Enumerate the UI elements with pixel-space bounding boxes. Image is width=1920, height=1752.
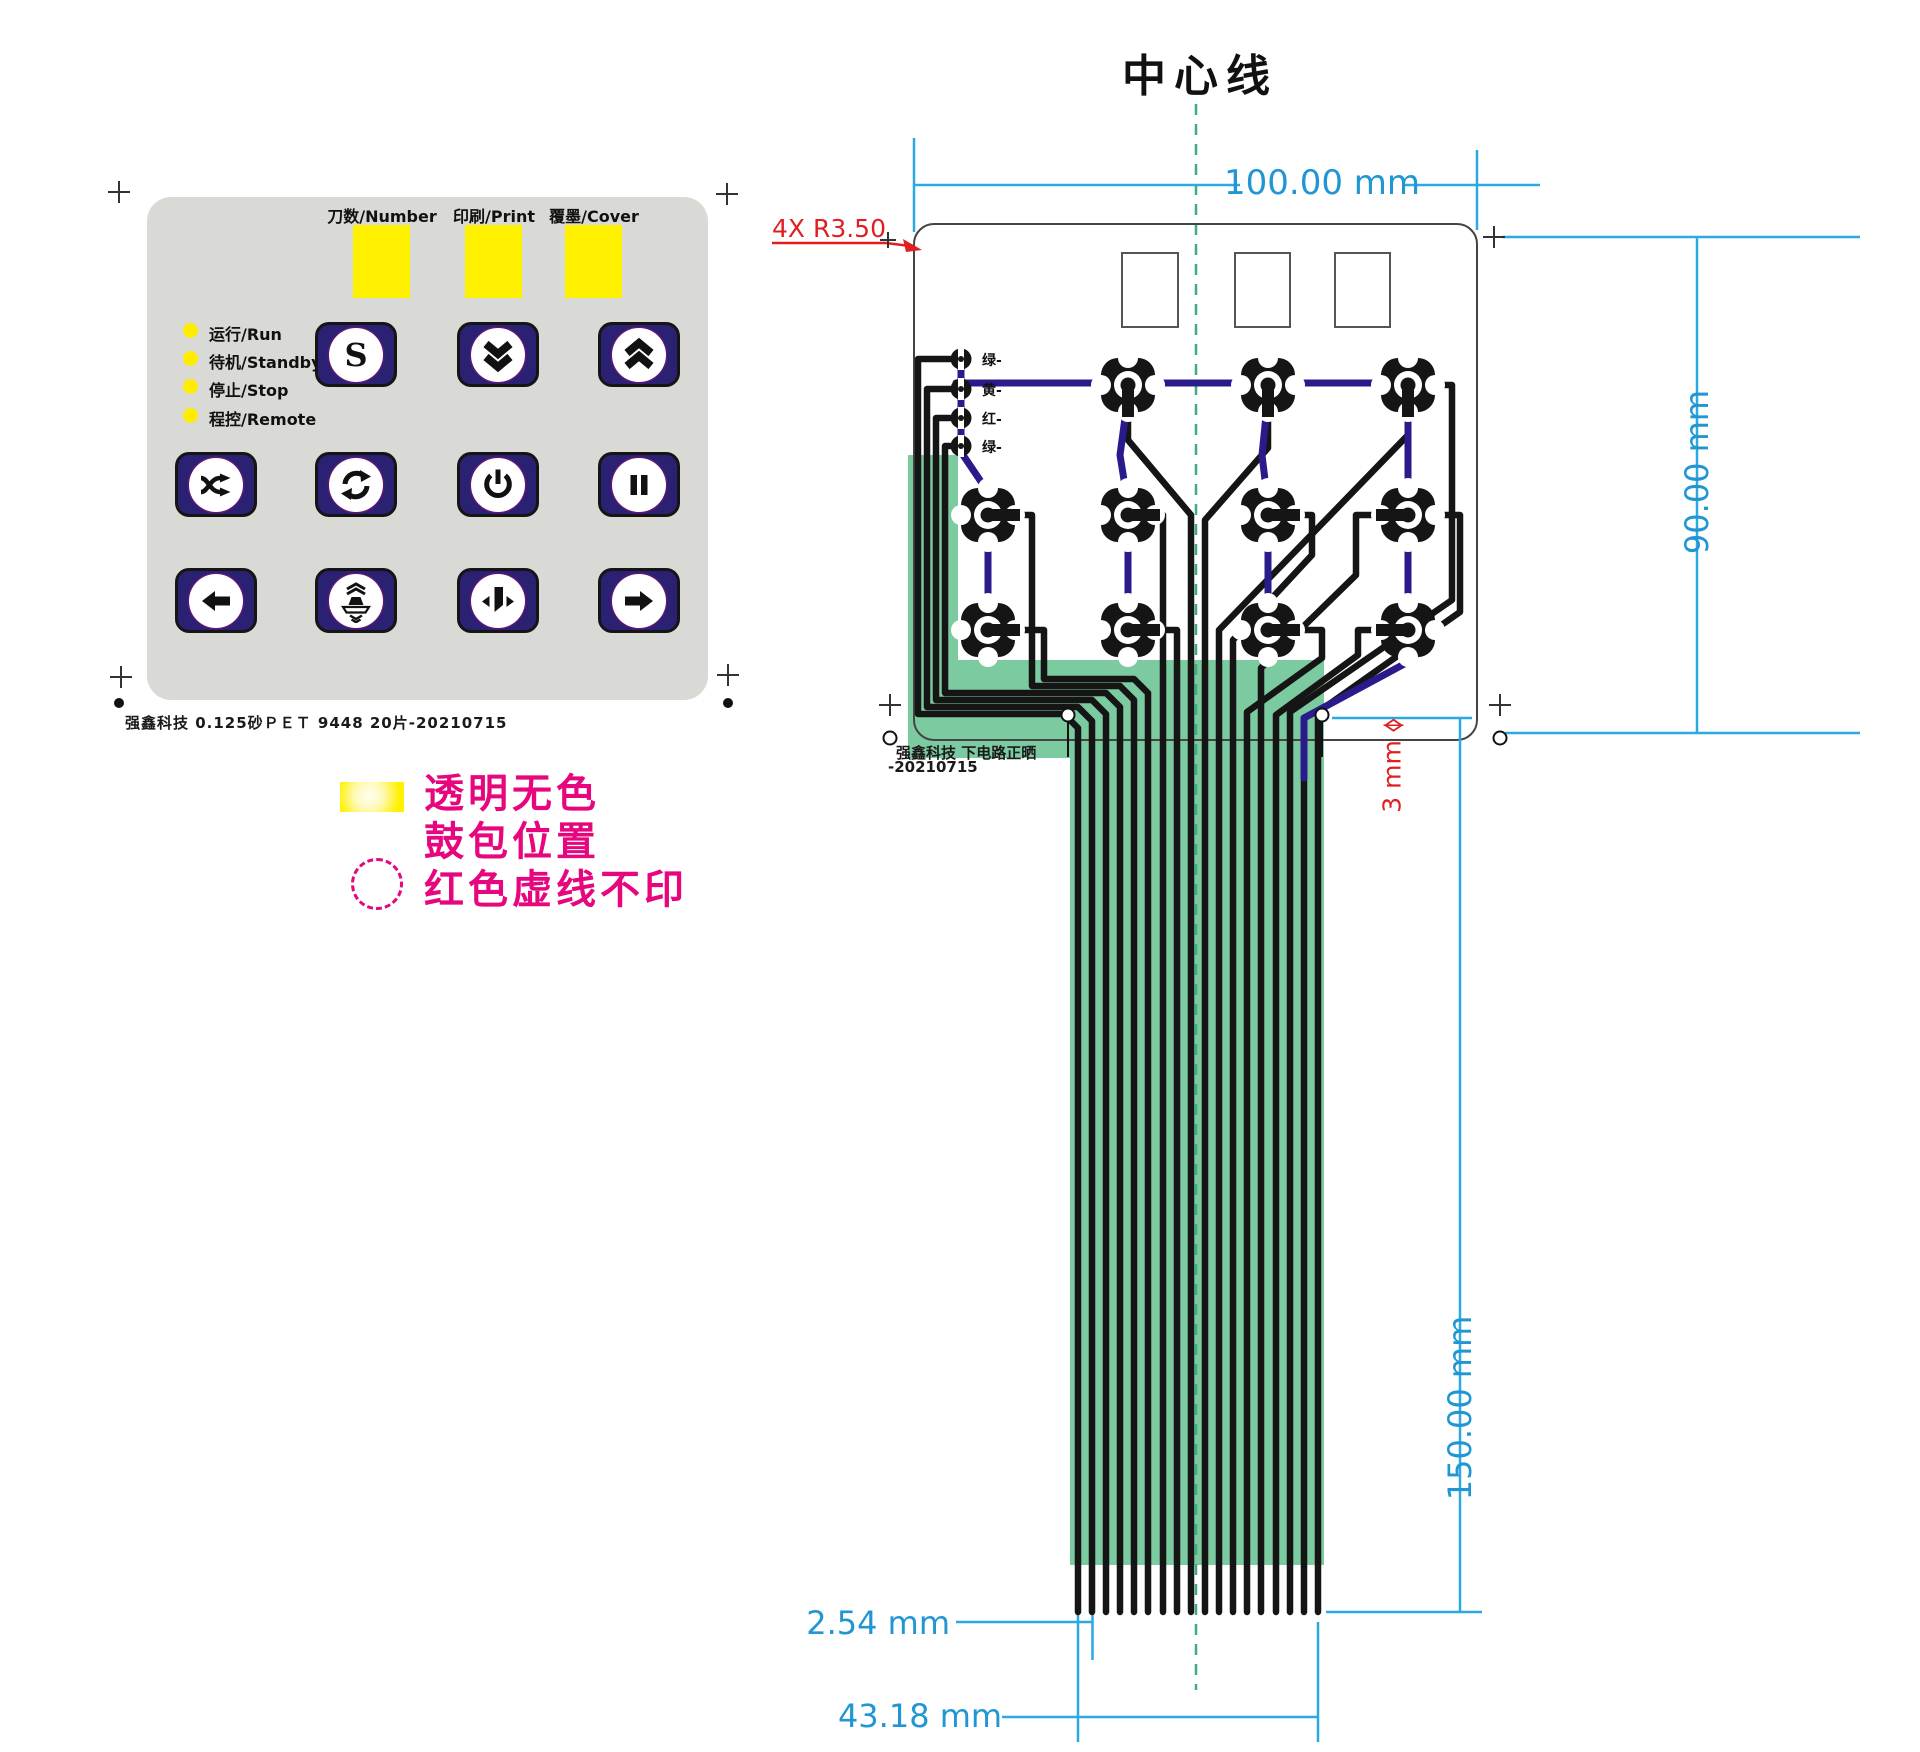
window-label: 覆墨/Cover bbox=[524, 203, 664, 227]
power-button[interactable] bbox=[457, 452, 539, 517]
black-traces bbox=[918, 359, 1460, 1612]
blade-button[interactable] bbox=[457, 568, 539, 633]
arrow-right-icon bbox=[617, 579, 661, 623]
dim-tail-width-label: 43.18 mm bbox=[838, 1697, 1002, 1735]
led-indicator bbox=[183, 323, 198, 338]
dim-tail-length-label: 150.00 mm bbox=[1441, 1316, 1479, 1500]
shuffle-icon bbox=[194, 463, 238, 507]
shuffle-button[interactable] bbox=[175, 452, 257, 517]
dim-width-label: 100.00 mm bbox=[1224, 163, 1420, 203]
circuit-panel-outline bbox=[914, 224, 1477, 740]
button-face bbox=[612, 458, 666, 512]
cycle-icon bbox=[334, 463, 378, 507]
led-label: 程控/Remote bbox=[209, 406, 316, 430]
wire-color-label: 黄- bbox=[982, 380, 1002, 400]
wire-color-label: 绿- bbox=[982, 437, 1002, 457]
legend-line: 鼓包位置 bbox=[424, 820, 600, 864]
chevrons-down-icon bbox=[476, 333, 520, 377]
s-button[interactable]: S bbox=[315, 322, 397, 387]
blue-traces bbox=[956, 368, 1408, 778]
key-contact-pads bbox=[951, 348, 1445, 667]
button-face bbox=[189, 458, 243, 512]
button-face bbox=[471, 574, 525, 628]
diameter-icon bbox=[1384, 719, 1404, 732]
double-up-button[interactable] bbox=[598, 322, 680, 387]
circuit-window-cutouts bbox=[1122, 253, 1390, 327]
hole-dim-label: 3 mm bbox=[1378, 719, 1407, 813]
tail-green-region bbox=[908, 455, 1324, 1565]
led-pads bbox=[951, 348, 972, 457]
corner-radius-label: 4X R3.50 bbox=[760, 214, 886, 243]
wire-color-label: 绿- bbox=[982, 350, 1002, 370]
press-button[interactable] bbox=[315, 568, 397, 633]
led-indicator bbox=[183, 408, 198, 423]
button-face bbox=[329, 458, 383, 512]
led-indicator bbox=[183, 379, 198, 394]
chevrons-up-icon bbox=[617, 333, 661, 377]
dim-pitch-label: 2.54 mm bbox=[770, 1604, 950, 1642]
s-icon: S bbox=[334, 333, 378, 377]
double-down-button[interactable] bbox=[457, 322, 539, 387]
legend-line: 透明无色 bbox=[424, 772, 600, 816]
center-line-title: 中心线 bbox=[1122, 40, 1278, 104]
svg-text:S: S bbox=[344, 336, 367, 374]
arrow-left-button[interactable] bbox=[175, 568, 257, 633]
button-face bbox=[471, 328, 525, 382]
button-face bbox=[471, 458, 525, 512]
dimension-lines bbox=[914, 138, 1860, 1742]
button-face: S bbox=[329, 328, 383, 382]
window-cutout bbox=[565, 225, 622, 298]
pause-icon bbox=[617, 463, 661, 507]
led-label: 待机/Standby bbox=[209, 349, 322, 373]
dim-height-label: 90.00 mm bbox=[1678, 390, 1716, 554]
arrow-right-button[interactable] bbox=[598, 568, 680, 633]
led-label: 停止/Stop bbox=[209, 377, 288, 401]
pause-button[interactable] bbox=[598, 452, 680, 517]
button-face bbox=[612, 574, 666, 628]
red-dashed-circle bbox=[351, 858, 403, 910]
led-label: 运行/Run bbox=[209, 321, 282, 345]
circuit-footer-line2: -20210715 bbox=[888, 758, 978, 776]
wire-color-label: 红- bbox=[982, 409, 1002, 429]
window-cutout bbox=[353, 225, 410, 298]
button-face bbox=[329, 574, 383, 628]
yellow-window-swatch bbox=[340, 782, 404, 812]
window-cutout bbox=[465, 225, 522, 298]
membrane-keypad-drawing: 刀数/Number印刷/Print覆墨/Cover运行/Run待机/Standb… bbox=[0, 0, 1920, 1752]
pilot-holes bbox=[1062, 709, 1329, 758]
power-icon bbox=[476, 463, 520, 507]
press-icon bbox=[334, 579, 378, 623]
legend-line: 红色虚线不印 bbox=[424, 868, 688, 912]
cycle-button[interactable] bbox=[315, 452, 397, 517]
blade-icon bbox=[476, 579, 520, 623]
button-face bbox=[189, 574, 243, 628]
keypad-footer-text: 强鑫科技 0.125砂ＰＥＴ 9448 20片-20210715 bbox=[125, 712, 507, 733]
arrow-left-icon bbox=[194, 579, 238, 623]
led-indicator bbox=[183, 351, 198, 366]
button-face bbox=[612, 328, 666, 382]
